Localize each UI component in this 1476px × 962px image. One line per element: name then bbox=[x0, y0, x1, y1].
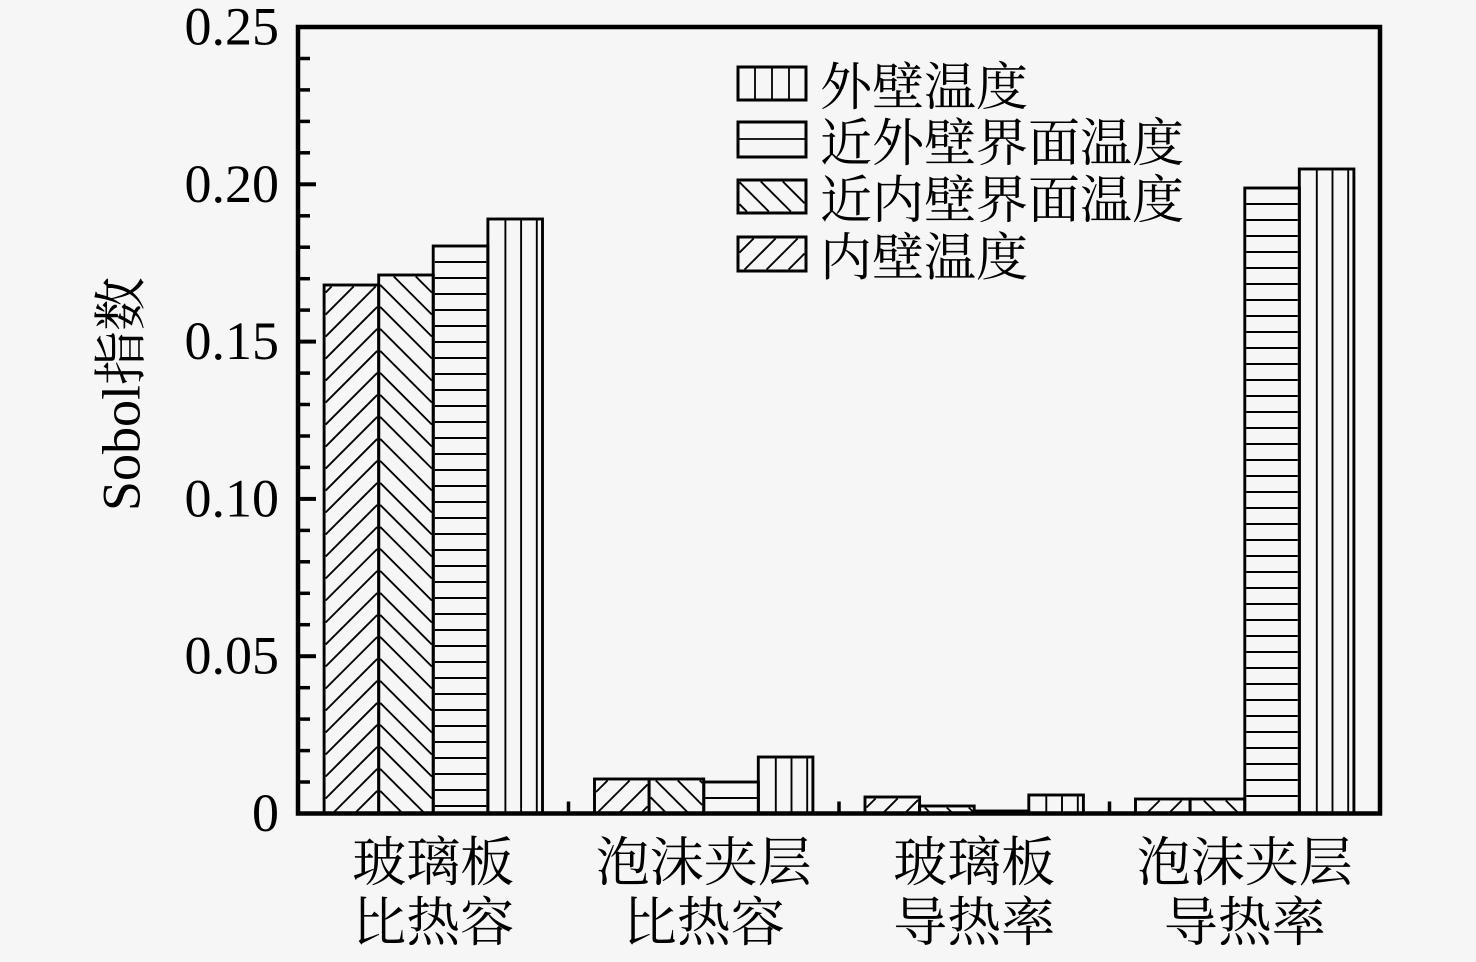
svg-text:0: 0 bbox=[252, 783, 279, 843]
svg-text:0.10: 0.10 bbox=[185, 468, 280, 528]
svg-text:0.25: 0.25 bbox=[185, 0, 280, 57]
svg-text:0.20: 0.20 bbox=[185, 154, 280, 214]
svg-text:0.15: 0.15 bbox=[185, 311, 280, 371]
svg-text:0.05: 0.05 bbox=[185, 626, 280, 686]
svg-text:Sobol: Sobol bbox=[92, 385, 152, 511]
